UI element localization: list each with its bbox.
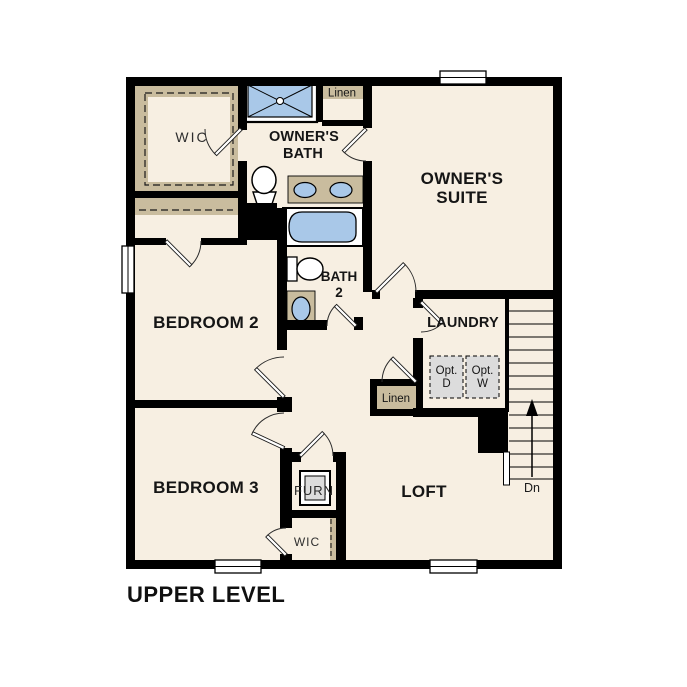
sink-icon bbox=[294, 183, 316, 198]
bedroom2-label: BEDROOM 2 bbox=[153, 313, 259, 332]
wall bbox=[135, 238, 166, 245]
wall-block bbox=[478, 410, 508, 453]
linen-hall-label: Linen bbox=[382, 393, 410, 405]
opt-dryer-label-line1: Opt. bbox=[436, 365, 458, 377]
stair-railing bbox=[504, 452, 510, 485]
owners-bath-label-line2: BATH bbox=[283, 146, 323, 162]
linen-top-label: Linen bbox=[328, 88, 356, 100]
wall bbox=[283, 510, 338, 518]
sink-icon bbox=[292, 297, 310, 321]
wic-top-label: WIC bbox=[175, 129, 208, 145]
tub-basin bbox=[289, 212, 356, 242]
shower-drain-icon bbox=[277, 98, 284, 105]
owners-bath-toilet bbox=[252, 167, 276, 205]
wall bbox=[277, 320, 327, 330]
stairs-down-label: Dn bbox=[524, 481, 540, 495]
owners-suite-label-line1: OWNER'S bbox=[421, 169, 504, 188]
toilet-bowl bbox=[252, 167, 276, 194]
wall bbox=[135, 400, 285, 408]
bedroom2-closet-shelf bbox=[135, 198, 238, 215]
bath2-label-line1: BATH bbox=[321, 269, 358, 284]
plan-title: UPPER LEVEL bbox=[127, 582, 285, 607]
owners-suite-label-line2: SUITE bbox=[436, 188, 488, 207]
bedroom3-label: BEDROOM 3 bbox=[153, 478, 259, 497]
wall-outer-bottom bbox=[126, 560, 562, 569]
wall bbox=[363, 161, 372, 292]
bath2-label-line2: 2 bbox=[335, 285, 343, 300]
opt-washer-label-line1: Opt. bbox=[472, 365, 494, 377]
wall-outer-left bbox=[126, 77, 135, 569]
wall-block bbox=[240, 203, 277, 240]
loft-label: LOFT bbox=[401, 482, 447, 501]
owners-bath-label-line1: OWNER'S bbox=[269, 129, 339, 145]
shower bbox=[243, 80, 317, 122]
wic-bottom-label: WIC bbox=[294, 535, 320, 549]
wall bbox=[201, 238, 245, 245]
wall bbox=[135, 191, 238, 198]
wall-outer-top bbox=[126, 77, 562, 86]
opt-washer-label-line2: W bbox=[477, 378, 488, 390]
opt-dryer-label-line2: D bbox=[442, 378, 450, 390]
wall bbox=[238, 86, 247, 130]
wall bbox=[415, 290, 553, 299]
wall bbox=[322, 120, 363, 126]
sink-icon bbox=[330, 183, 352, 198]
floor-plan-page: WIC OWNER'S BATH Linen OWNER'S SUITE BED… bbox=[0, 0, 687, 687]
toilet-bowl bbox=[297, 258, 323, 280]
toilet-tank bbox=[287, 257, 297, 281]
bathtub bbox=[283, 208, 363, 246]
laundry-label: LAUNDRY bbox=[427, 315, 499, 331]
bath2-toilet bbox=[287, 257, 323, 281]
wall bbox=[336, 452, 346, 560]
wall-outer-right bbox=[553, 77, 562, 569]
wall bbox=[316, 86, 323, 122]
opt-dryer-box bbox=[430, 356, 463, 398]
opt-washer-box bbox=[466, 356, 499, 398]
owners-bath-vanity bbox=[288, 176, 363, 203]
wall-stair-rail bbox=[505, 298, 509, 412]
floor-plan: WIC OWNER'S BATH Linen OWNER'S SUITE BED… bbox=[0, 0, 687, 687]
wall bbox=[363, 86, 372, 128]
wall-jamb bbox=[277, 397, 292, 412]
furnace-label: FURN bbox=[294, 483, 334, 498]
